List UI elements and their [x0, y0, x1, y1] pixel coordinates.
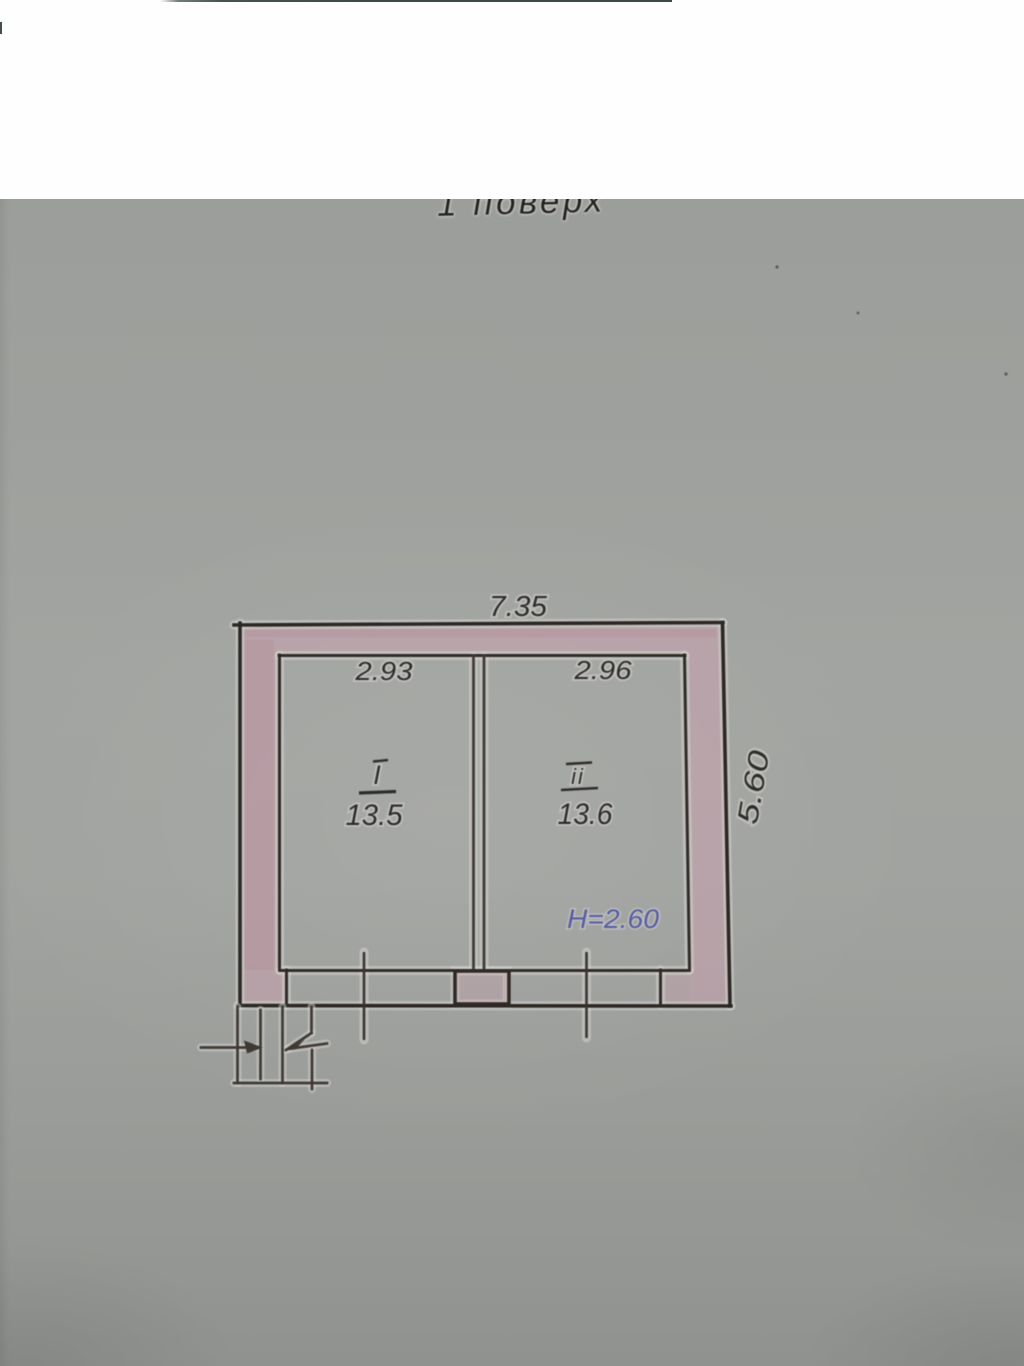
svg-text:H=2.60: H=2.60 — [567, 904, 659, 934]
svg-text:13.6: 13.6 — [558, 798, 613, 831]
svg-text:2.93: 2.93 — [354, 656, 413, 686]
svg-text:13.5: 13.5 — [346, 799, 403, 832]
svg-text:7.35: 7.35 — [489, 591, 548, 623]
svg-text:ii: ii — [571, 764, 585, 789]
svg-text:5.60: 5.60 — [732, 748, 776, 826]
svg-text:2.96: 2.96 — [573, 655, 632, 685]
svg-text:I: I — [373, 760, 381, 790]
